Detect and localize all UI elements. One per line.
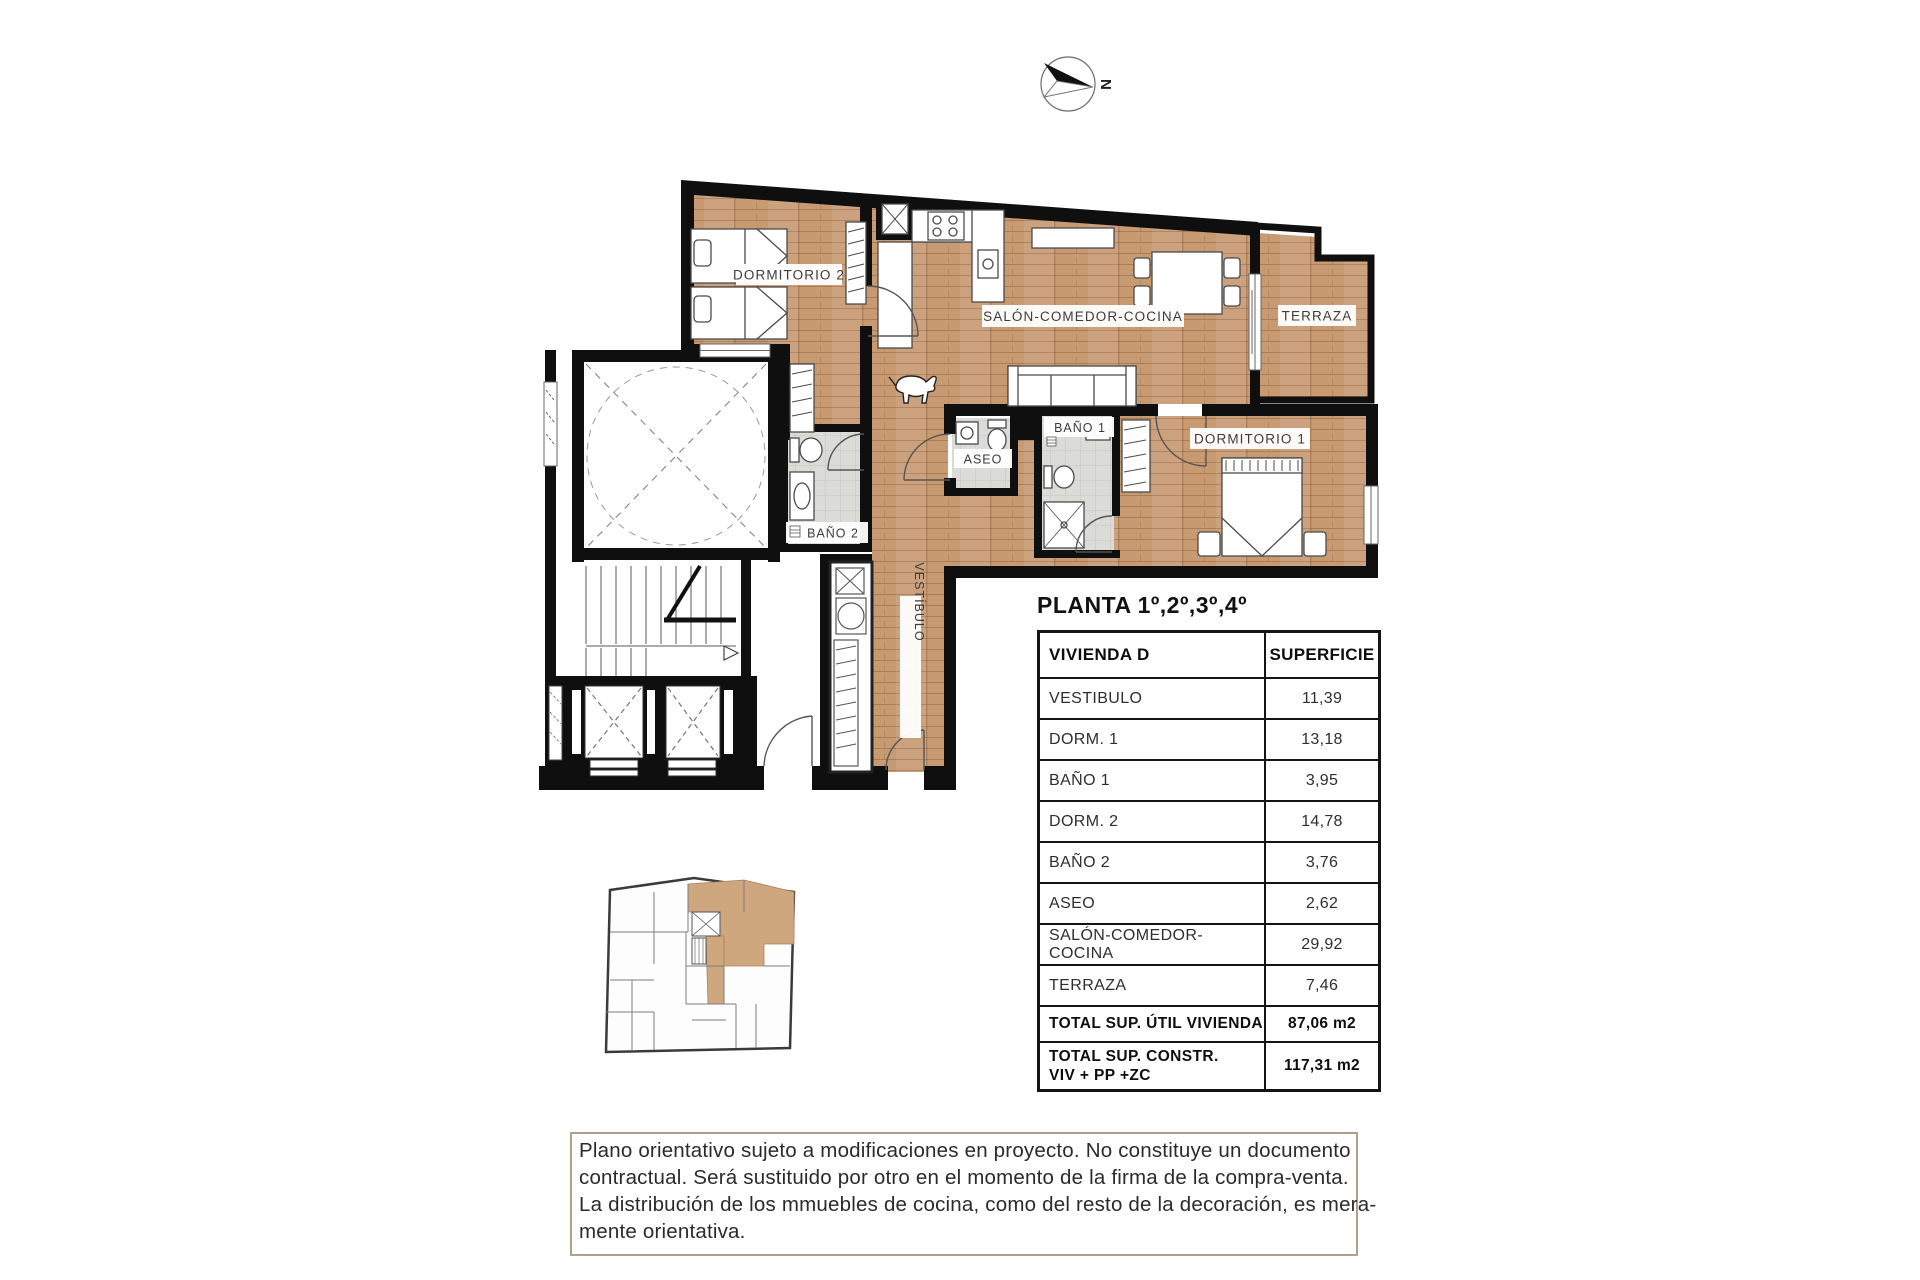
row-value: 29,92 xyxy=(1266,925,1378,964)
stove-icon xyxy=(928,212,964,240)
row-label: SALÓN-COMEDOR-COCINA xyxy=(1040,925,1266,964)
table-header-vivienda: VIVIENDA D xyxy=(1040,633,1266,677)
table-row: ASEO 2,62 xyxy=(1040,882,1378,923)
table-row: DORM. 1 13,18 xyxy=(1040,718,1378,759)
table-total-util-row: TOTAL SUP. ÚTIL VIVIENDA 87,06 m2 xyxy=(1040,1005,1378,1041)
compass-circle xyxy=(1041,57,1095,111)
row-value: 2,62 xyxy=(1266,884,1378,923)
row-label: TERRAZA xyxy=(1040,966,1266,1005)
table-header-superficie: SUPERFICIE xyxy=(1266,633,1378,677)
row-value: 13,18 xyxy=(1266,720,1378,759)
nightstand xyxy=(1198,532,1220,556)
disclaimer-line: La distribución de los mmuebles de cocin… xyxy=(579,1191,1349,1218)
total-value: 87,06 m2 xyxy=(1266,1007,1378,1041)
planta-heading: PLANTA 1º,2º,3º,4º xyxy=(1037,592,1247,619)
service-shaft-hatch xyxy=(549,686,562,760)
staircase xyxy=(556,560,741,680)
floor-plan-svg: N xyxy=(0,0,1920,1280)
row-label: VESTIBULO xyxy=(1040,679,1266,718)
row-value: 14,78 xyxy=(1266,802,1378,841)
wardrobe-dorm2 xyxy=(846,222,866,304)
label-dormitorio1: DORMITORIO 1 xyxy=(1190,428,1310,449)
row-label: ASEO xyxy=(1040,884,1266,923)
window-left-wall xyxy=(544,382,557,466)
svg-text:VESTÍBULO: VESTÍBULO xyxy=(912,562,927,641)
towel-icon xyxy=(1047,437,1056,446)
patio-lightwell xyxy=(584,362,768,550)
hall-floor xyxy=(948,492,1020,572)
window-dorm1-right xyxy=(1364,486,1378,544)
table-row: BAÑO 2 3,76 xyxy=(1040,841,1378,882)
sofa xyxy=(1008,366,1136,406)
label-dormitorio2: DORMITORIO 2 xyxy=(733,264,845,285)
total-label: TOTAL SUP. ÚTIL VIVIENDA xyxy=(1040,1007,1266,1041)
label-salon: SALÓN-COMEDOR-COCINA xyxy=(982,305,1184,327)
row-label: DORM. 1 xyxy=(1040,720,1266,759)
svg-text:TERRAZA: TERRAZA xyxy=(1282,309,1353,324)
corridor-wardrobe xyxy=(834,640,858,766)
total-label-line2: VIV + PP +ZC xyxy=(1049,1066,1151,1085)
total-label: TOTAL SUP. CONSTR. VIV + PP +ZC xyxy=(1040,1043,1266,1089)
washing-machine-icon xyxy=(836,598,866,634)
svg-text:DORMITORIO 1: DORMITORIO 1 xyxy=(1194,432,1306,447)
svg-text:DORMITORIO 2: DORMITORIO 2 xyxy=(733,268,845,283)
row-label: DORM. 2 xyxy=(1040,802,1266,841)
label-terraza: TERRAZA xyxy=(1278,305,1356,326)
table-row: SALÓN-COMEDOR-COCINA 29,92 xyxy=(1040,923,1378,964)
north-arrow-outline xyxy=(1044,81,1093,97)
svg-text:ASEO: ASEO xyxy=(964,453,1003,467)
disclaimer-line: mente orientativa. xyxy=(579,1218,1349,1245)
corridor-niche xyxy=(830,562,872,772)
lobby-door-arc xyxy=(764,716,812,766)
toilet-icon xyxy=(790,438,799,462)
kitchen-sink-icon xyxy=(978,250,998,278)
toilet-icon xyxy=(1044,466,1052,488)
compass-north-label: N xyxy=(1097,79,1114,90)
total-value: 117,31 m2 xyxy=(1266,1043,1378,1089)
svg-text:BAÑO 2: BAÑO 2 xyxy=(807,527,859,541)
disclaimer-line: contractual. Será sustituido por otro en… xyxy=(579,1164,1349,1191)
label-bano2: BAÑO 2 xyxy=(786,522,868,543)
towel-icon xyxy=(790,526,800,537)
table-header-row: VIVIENDA D SUPERFICIE xyxy=(1040,633,1378,677)
svg-text:BAÑO 1: BAÑO 1 xyxy=(1054,421,1106,435)
sideboard xyxy=(1032,228,1114,248)
label-aseo: ASEO xyxy=(954,449,1012,468)
compass: N xyxy=(1041,57,1114,111)
table-row: BAÑO 1 3,95 xyxy=(1040,759,1378,800)
table-row: DORM. 2 14,78 xyxy=(1040,800,1378,841)
table-row: TERRAZA 7,46 xyxy=(1040,964,1378,1005)
surface-table: VIVIENDA D SUPERFICIE VESTIBULO 11,39 DO… xyxy=(1037,630,1381,1092)
window-dorm2-patio xyxy=(700,344,770,357)
window-salon-terraza-slider xyxy=(1249,274,1261,370)
row-value: 7,46 xyxy=(1266,966,1378,1005)
cabinet-x-icon xyxy=(836,568,864,594)
room-vestibulo-upper xyxy=(872,404,948,566)
wall-south xyxy=(944,566,1378,578)
nightstand xyxy=(1304,532,1326,556)
row-label: BAÑO 1 xyxy=(1040,761,1266,800)
total-label-line1: TOTAL SUP. CONSTR. xyxy=(1049,1047,1219,1066)
toilet-icon xyxy=(988,420,1006,428)
row-label: BAÑO 2 xyxy=(1040,843,1266,882)
disclaimer-line: Plano orientativo sujeto a modificacione… xyxy=(579,1137,1349,1164)
page: N xyxy=(0,0,1920,1280)
sink-icon xyxy=(956,422,978,444)
row-value: 3,95 xyxy=(1266,761,1378,800)
row-value: 3,76 xyxy=(1266,843,1378,882)
disclaimer-box: Plano orientativo sujeto a modificacione… xyxy=(570,1132,1358,1256)
key-plan xyxy=(606,878,794,1052)
wardrobe-dorm2-lower xyxy=(790,364,814,432)
row-value: 11,39 xyxy=(1266,679,1378,718)
table-total-constr-row: TOTAL SUP. CONSTR. VIV + PP +ZC 117,31 m… xyxy=(1040,1041,1378,1089)
single-bed-2 xyxy=(691,287,787,339)
common-areas xyxy=(556,362,768,680)
table-row: VESTIBULO 11,39 xyxy=(1040,677,1378,718)
wardrobe-dorm1 xyxy=(1122,420,1150,492)
shaft-x-icon xyxy=(882,204,908,234)
svg-text:SALÓN-COMEDOR-COCINA: SALÓN-COMEDOR-COCINA xyxy=(983,309,1183,324)
